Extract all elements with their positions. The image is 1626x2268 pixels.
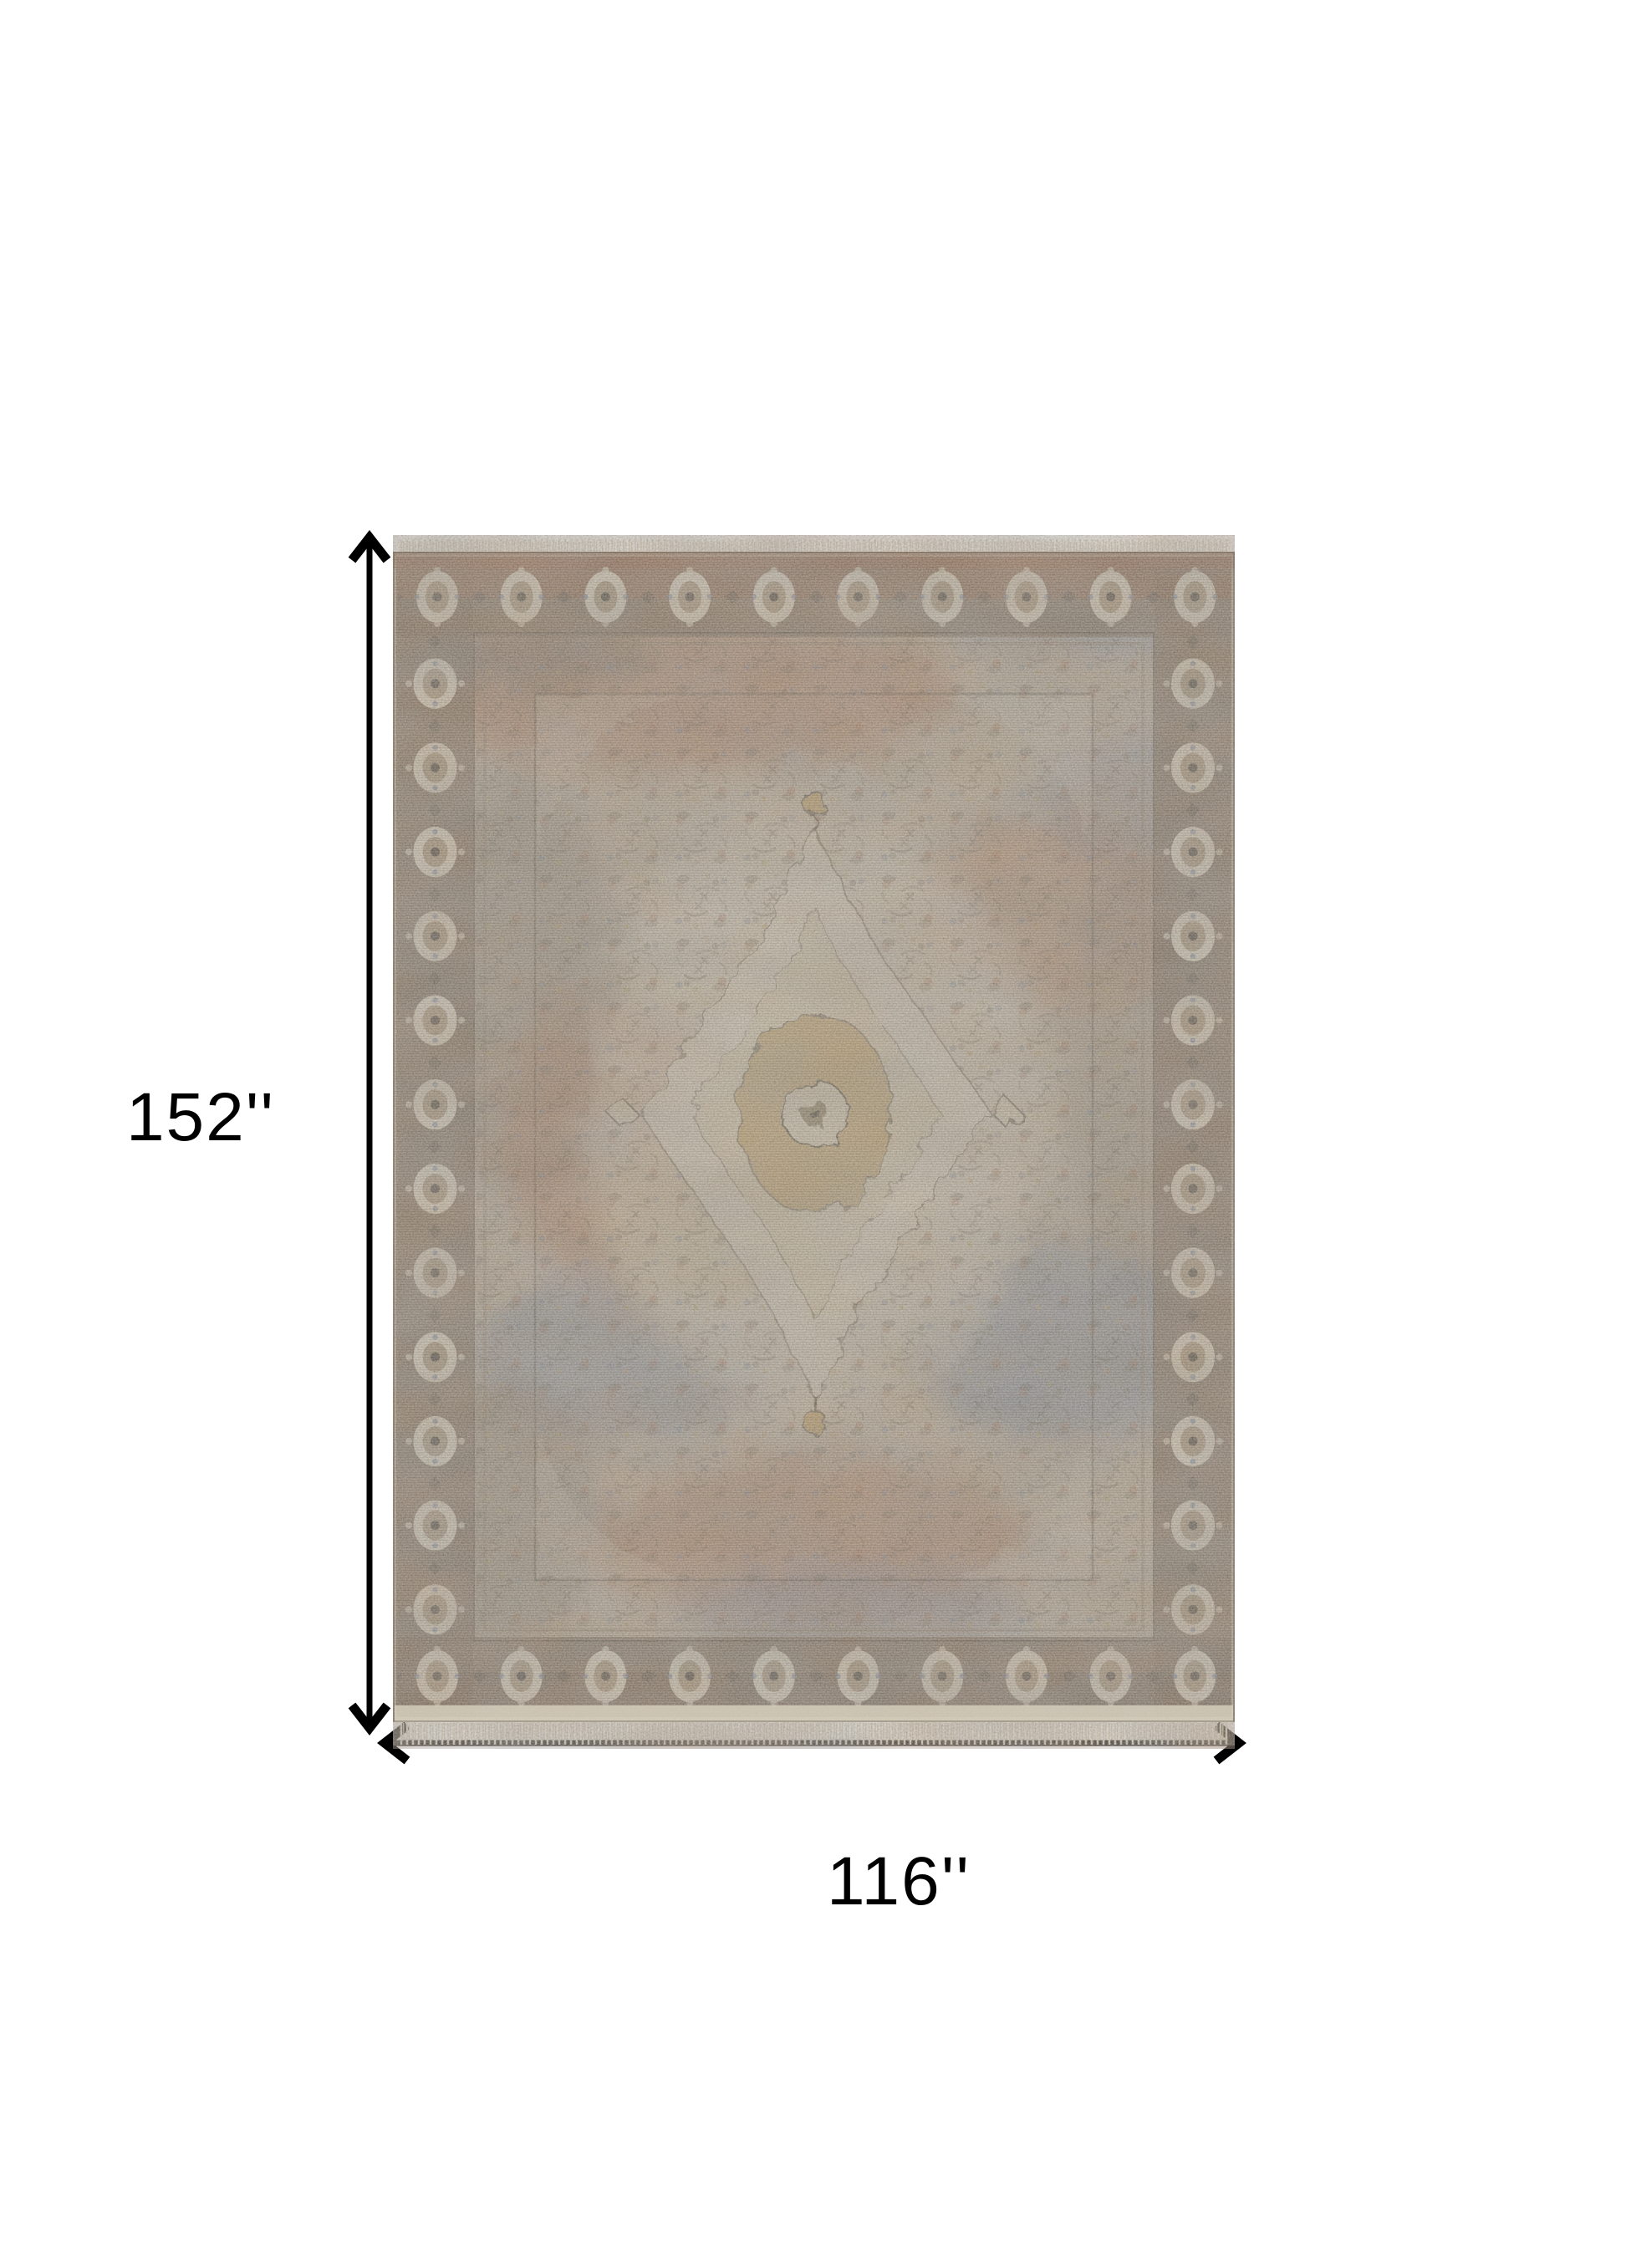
rug-image xyxy=(393,535,1235,1749)
rug-weave-texture xyxy=(393,552,1235,1722)
rug-fringe-bottom xyxy=(400,1722,1228,1745)
height-dimension-label: 152'' xyxy=(100,1083,301,1152)
width-dimension-label: 116'' xyxy=(798,1848,999,1916)
height-dimension-arrow xyxy=(342,529,397,1736)
product-dimension-image: 152'' 116'' xyxy=(0,0,1626,2268)
rug-fringe-top xyxy=(400,538,1228,552)
rug-body xyxy=(393,552,1235,1722)
rug-bottom-selvage xyxy=(395,1705,1233,1722)
